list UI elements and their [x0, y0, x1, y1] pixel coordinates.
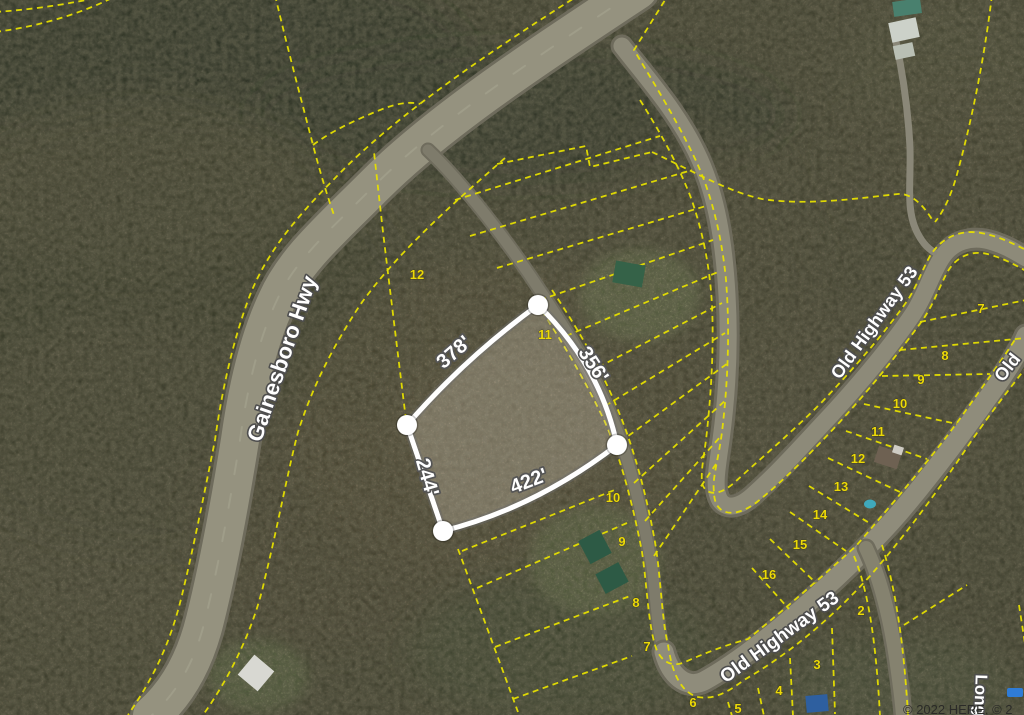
parcel-number: 12	[851, 451, 865, 466]
parcel-number: 14	[813, 507, 828, 522]
map-canvas[interactable]: 1211109876578910111213141516234 378'356'…	[0, 0, 1024, 715]
parcel-number: 9	[618, 534, 625, 549]
parcel-number: 3	[813, 657, 820, 672]
parcel-number: 11	[871, 424, 885, 439]
parcel-number: 2	[857, 603, 864, 618]
parcel-number: 15	[793, 537, 807, 552]
vertex-marker[interactable]	[397, 415, 417, 435]
parcel-number: 7	[977, 301, 984, 316]
parcel-number: 10	[893, 396, 907, 411]
building-blue-roof	[805, 694, 828, 713]
parcel-number: 13	[834, 479, 848, 494]
vertex-marker[interactable]	[607, 435, 627, 455]
parcel-number: 10	[606, 490, 620, 505]
map-viewport[interactable]: 1211109876578910111213141516234 378'356'…	[0, 0, 1024, 715]
swimming-pool	[864, 500, 876, 509]
parcel-number: 12	[410, 267, 424, 282]
vertex-marker[interactable]	[433, 521, 453, 541]
attribution: © 2022 HERE, © 2	[903, 702, 1012, 715]
vertex-marker[interactable]	[528, 295, 548, 315]
parcel-number: 16	[762, 567, 776, 582]
parcel-number: 4	[775, 683, 783, 698]
parcel-number: 8	[632, 595, 639, 610]
parcel-number: 6	[689, 695, 696, 710]
parcel-number: 9	[917, 372, 924, 387]
parcel-number: 11	[538, 327, 552, 342]
parcel-number: 7	[643, 639, 650, 654]
map-provider-logo	[1007, 688, 1023, 697]
parcel-number: 8	[941, 348, 948, 363]
parcel-number: 5	[734, 701, 741, 715]
